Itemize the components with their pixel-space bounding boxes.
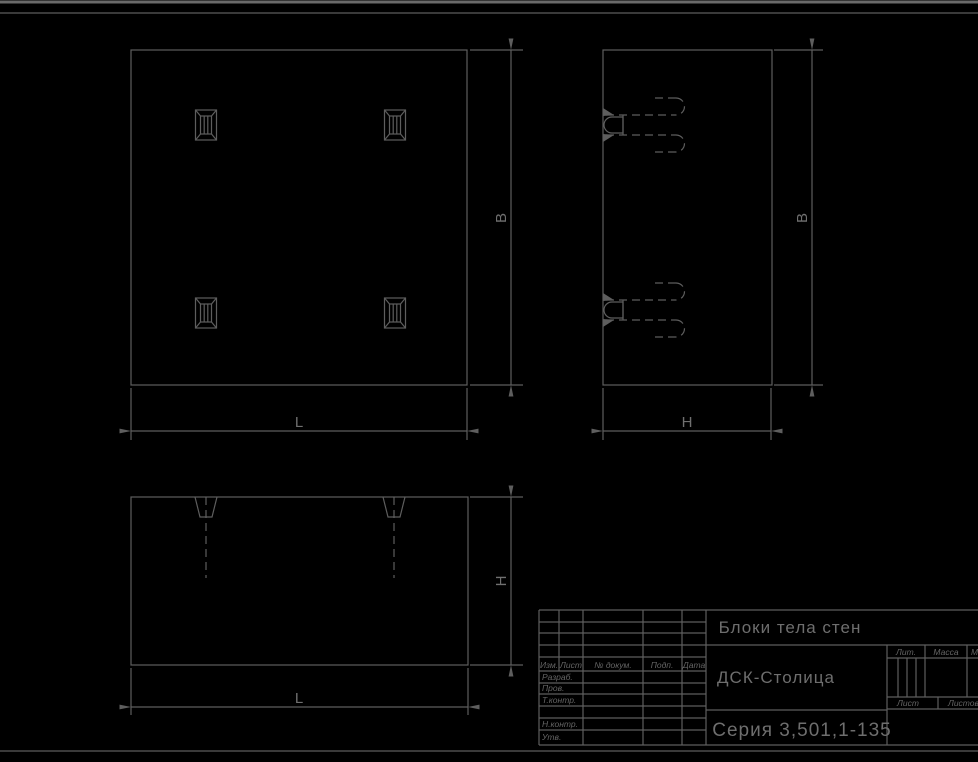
view-plan — [131, 50, 467, 385]
dim-label-side-height: H — [682, 414, 693, 431]
row-utv: Утв. — [541, 732, 561, 742]
dim-front-height: H — [470, 497, 523, 665]
view-front — [131, 497, 468, 665]
dim-label-front-height: H — [493, 576, 510, 587]
col-izm: Изм. — [540, 660, 558, 670]
loop-recess — [195, 497, 217, 578]
lifting-loop-hidden — [603, 283, 684, 337]
row-razrab: Разраб. — [542, 672, 573, 682]
col-podp: Подп. — [651, 660, 674, 670]
sheet-count-row: Лист Листов — [896, 698, 978, 708]
col-ndocum: № докум. — [594, 660, 631, 670]
dim-label-front-length: L — [295, 690, 303, 707]
col-data: Дата — [682, 660, 706, 670]
row-nkontr: Н.контр. — [542, 719, 578, 729]
lifting-anchor-recess — [385, 298, 406, 328]
lifting-anchor-recess — [196, 298, 217, 328]
mass-label: Масса — [933, 647, 958, 657]
drawing-title: Блоки тела стен — [719, 618, 862, 637]
lifting-loop-hidden — [603, 98, 684, 152]
dim-side-width: B — [774, 50, 823, 385]
col-list: Лист — [559, 660, 582, 670]
revision-header: Изм. Лист № докум. Подп. Дата — [540, 660, 706, 670]
row-prov: Пров. — [542, 683, 564, 693]
series-designation: Серия 3,501,1-135 — [712, 720, 891, 741]
sheet-label: Лист — [896, 698, 919, 708]
lifting-anchor-recess — [385, 110, 406, 140]
dim-front-length: L — [131, 668, 468, 715]
scale-label: Масштаб — [971, 647, 978, 657]
dim-label-side-width: B — [794, 213, 811, 223]
loop-recess — [383, 497, 405, 578]
drawing-sheet: B L B H H — [0, 0, 978, 762]
lit-label: Лит. — [895, 647, 916, 657]
dim-side-height: H — [603, 388, 771, 440]
dim-plan-length: L — [131, 388, 467, 440]
dim-label-plan-length: L — [295, 414, 303, 431]
lifting-anchor-recess — [196, 110, 217, 140]
dim-label-plan-width: B — [493, 213, 510, 223]
lit-mass-scale-header: Лит. Масса Масштаб — [895, 647, 978, 657]
view-side — [603, 50, 772, 385]
sheets-label: Листов — [947, 698, 978, 708]
row-tkontr: Т.контр. — [542, 695, 576, 705]
title-block: Изм. Лист № докум. Подп. Дата Разраб. Пр… — [539, 610, 978, 745]
engineering-drawing: B L B H H — [0, 0, 978, 762]
dim-plan-width: B — [470, 50, 523, 385]
organization-name: ДСК-Столица — [717, 668, 835, 687]
sheet-frame — [0, 2, 978, 751]
